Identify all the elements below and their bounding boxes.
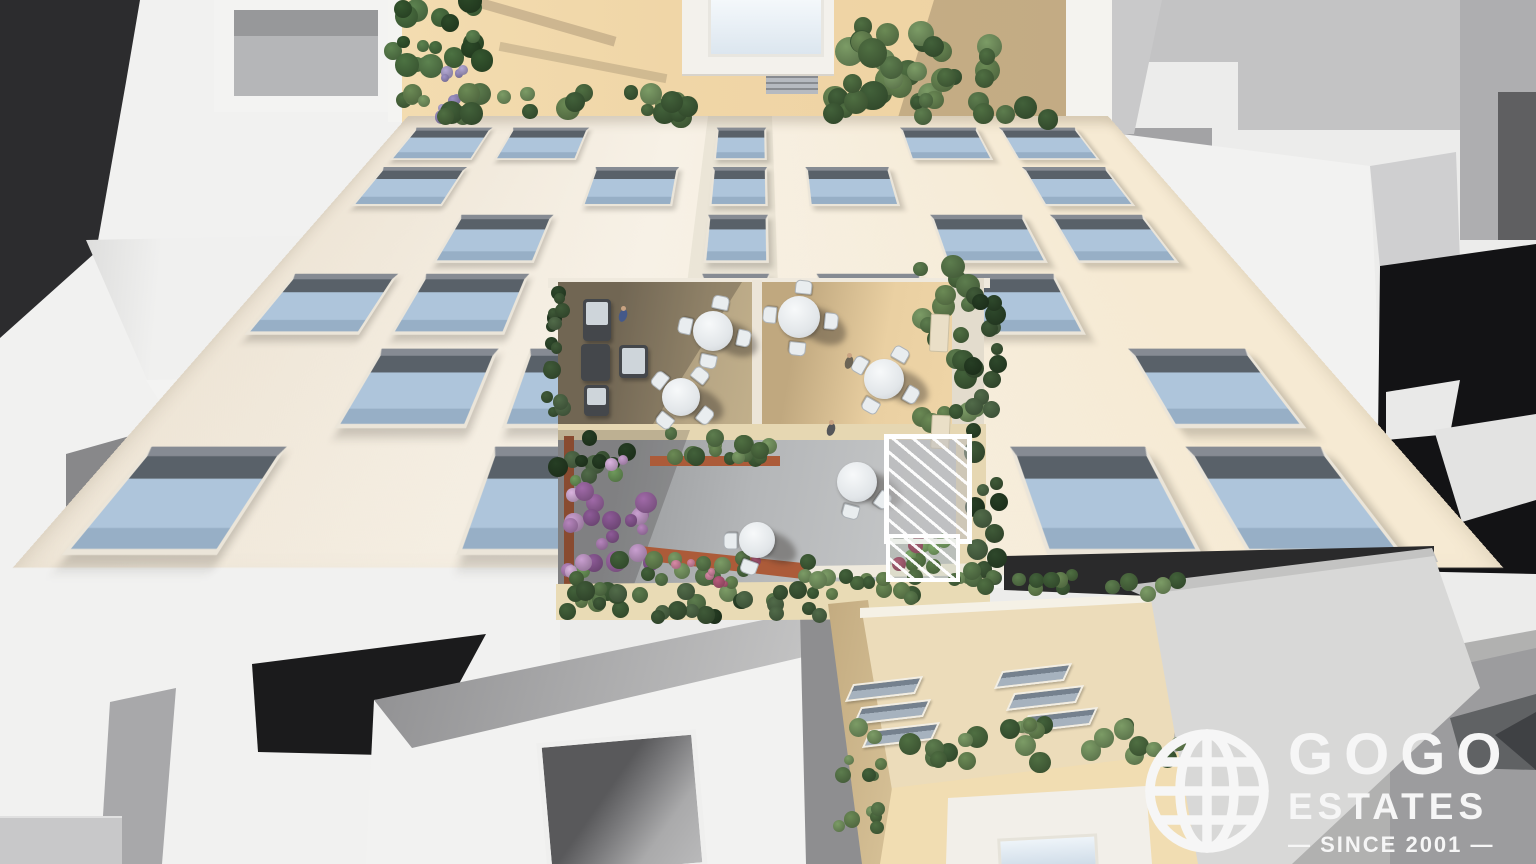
roof-tree-small-blob xyxy=(979,48,996,65)
courtyard-walkway xyxy=(556,580,990,620)
palm-tree-blob xyxy=(409,57,423,71)
pergola-garden-blob xyxy=(913,534,924,545)
roof-tree-small-blob xyxy=(977,34,1002,59)
bottom-hedge-diagonal-blob xyxy=(1021,717,1038,734)
lavender-plant-blob xyxy=(441,74,449,82)
flowerbed-green-top-blob xyxy=(585,455,604,474)
ivy-wall-blob xyxy=(987,548,1008,569)
ivy-wall-blob xyxy=(965,497,985,517)
palm-tree-blob xyxy=(458,0,482,13)
context-parapet-court-shade xyxy=(234,10,378,36)
bottom-hedge-left-blob xyxy=(876,572,891,587)
courtyard-planter-blob xyxy=(734,435,753,454)
lounge-sofa-2 xyxy=(584,385,609,416)
roof-hedge-right-blob xyxy=(824,87,848,111)
facade-window xyxy=(674,447,775,555)
terrace-right-hedge-blob xyxy=(961,297,976,312)
pergola-garden-blob xyxy=(911,553,926,568)
ivy-wall-blob xyxy=(965,398,983,416)
roof-hedge-right-blob xyxy=(911,96,925,110)
bottom-hedge-diagonal-blob xyxy=(930,751,947,768)
terrace-table-2 xyxy=(662,378,700,416)
planter-row-mid-blob xyxy=(725,576,739,590)
context-concrete-terrace xyxy=(1004,446,1214,558)
planter-row-mid-blob xyxy=(674,563,690,579)
flowerbed-purple-blob xyxy=(625,514,638,527)
roof-hedge-right-blob xyxy=(914,107,932,125)
bottom-hedge-left-blob xyxy=(819,569,836,586)
bottom-hedge-diagonal-blob xyxy=(925,739,944,758)
roof-hedge-right-blob xyxy=(996,105,1015,124)
bottom-hedge-left-blob xyxy=(860,573,873,586)
facade-window xyxy=(582,167,680,206)
palm-tree-blob xyxy=(417,40,429,52)
walkway-hedge-blob xyxy=(767,596,784,613)
context-shadow-top-left xyxy=(0,0,160,340)
courtyard-planter-blob xyxy=(706,429,724,447)
context-shadow-black-right xyxy=(1238,244,1536,574)
terrace-table-1 xyxy=(693,311,733,351)
roof-tree-large-blob xyxy=(895,60,922,87)
courtyard-planter-blob xyxy=(739,448,753,462)
foreground-building-right-wall xyxy=(798,600,872,864)
flowerbed-purple-blob xyxy=(580,556,593,569)
bottom-hedge-diagonal-blob xyxy=(1023,718,1037,732)
flowerbed-green-bottom-blob xyxy=(569,571,584,586)
bottom-hedge-right-blob xyxy=(1120,573,1138,591)
walkway-hedge-blob xyxy=(593,597,606,610)
pergola-garden-blob xyxy=(912,549,923,560)
roof-tree-small-blob xyxy=(937,68,956,87)
facade-window xyxy=(390,128,493,160)
roof-tree-large-blob xyxy=(854,17,872,35)
bottom-building-parapet xyxy=(808,560,1190,578)
roof-hedge-left-blob xyxy=(661,91,683,113)
courtyard-planter-blob xyxy=(665,427,678,440)
ivy-wall-blob xyxy=(964,441,986,463)
planter-row-mid-blob xyxy=(695,567,715,587)
courtyard-left-terracotta xyxy=(564,436,574,616)
facade-window xyxy=(930,215,1048,263)
courtyard-table-2 xyxy=(837,462,877,502)
ivy-wall-blob xyxy=(976,561,992,577)
lounge-ottoman xyxy=(581,344,610,381)
main-roof-shadow xyxy=(896,0,1068,124)
bottom-hedge-right-blob xyxy=(1028,581,1043,596)
bottom-hedge-diagonal-blob xyxy=(1094,728,1113,747)
courtyard-planter-blob xyxy=(667,449,684,466)
terrace-table-1-chair xyxy=(698,353,718,370)
terrace-table-2-shadow xyxy=(673,381,728,428)
planter-row-mid-blob xyxy=(714,557,731,574)
facade-window xyxy=(709,167,768,206)
roof-tree-small-blob xyxy=(908,21,934,47)
roof-hedge-left-blob xyxy=(497,90,512,105)
roof-hedge-left-blob xyxy=(403,84,423,104)
flowerbed-green-top-blob xyxy=(575,455,588,468)
roof-hedge-right-blob xyxy=(910,93,928,111)
roof-hedge-right-blob xyxy=(838,103,853,118)
bottom-left-shrubs-blob xyxy=(833,820,846,833)
planter-flowers-mid-blob xyxy=(687,559,695,567)
context-wall-band-left xyxy=(488,226,518,508)
terrace-right-hedge-blob xyxy=(912,407,932,427)
facade-window xyxy=(1010,447,1203,555)
terrace-right-hedge-blob xyxy=(959,402,978,421)
terrace-right-hedge-blob xyxy=(958,403,977,422)
flowerbed-purple-blob xyxy=(643,555,659,571)
lounge-side-table-cushion xyxy=(622,348,645,374)
bottom-hedge-diagonal-blob xyxy=(1081,740,1101,760)
flowerbed-purple-blob xyxy=(602,511,621,530)
person-standing-2-body xyxy=(825,422,837,437)
pergola-garden-blob xyxy=(918,541,929,552)
bottom-hedge-right-blob xyxy=(1169,572,1186,589)
context-parapet-court-inner xyxy=(234,10,378,96)
courtyard-table-1 xyxy=(739,522,775,558)
roof-tree-small-blob xyxy=(975,58,1001,84)
facade-window xyxy=(950,274,1086,335)
terrace-right-hedge-blob xyxy=(912,308,933,329)
pergola-garden-blob xyxy=(892,557,906,571)
flowerbed-green-bottom-blob xyxy=(598,582,617,601)
bottom-building-roof-structure xyxy=(946,786,1152,864)
bottom-hedge-right-blob xyxy=(948,573,961,586)
terrace-table-3 xyxy=(778,296,820,338)
planter-flowers-mid-blob xyxy=(671,560,681,570)
ivy-wall-blob xyxy=(967,539,988,560)
walkway-hedge-blob xyxy=(609,585,627,603)
bottom-left-shrubs-blob xyxy=(866,806,876,816)
flowerbed-purple-blob xyxy=(631,508,649,526)
lavender-plant-blob xyxy=(438,104,446,112)
context-white-wall-mid xyxy=(982,438,1008,588)
flowerbed-purple-blob xyxy=(585,554,603,572)
context-roof-left-base xyxy=(0,0,560,864)
roof-hedge-right-blob xyxy=(828,88,848,108)
context-roof-slab-a xyxy=(66,230,496,382)
context-parapet-court-outer xyxy=(214,0,396,112)
roof-hedge-left-blob xyxy=(454,106,473,125)
bottom-hedge-left-blob xyxy=(904,591,918,605)
terrace-right-deck xyxy=(760,282,982,432)
main-roof-access-structure xyxy=(682,0,834,76)
walkway-hedge-blob xyxy=(733,593,750,610)
foreground-patio-opening xyxy=(536,729,707,864)
roof-hedge-left-blob xyxy=(396,92,413,109)
roof-hedge-right-blob xyxy=(1014,96,1037,119)
roof-hedge-right-blob xyxy=(833,89,849,105)
pergola-garden-blob xyxy=(926,559,941,574)
pergola-garden-blob xyxy=(908,539,922,553)
flowerbed-green-top-blob xyxy=(595,451,610,466)
context-block-bottom-left xyxy=(0,816,122,864)
terrace-edge-plants-blob xyxy=(551,342,563,354)
roof-hedge-right-blob xyxy=(919,93,933,107)
context-roof-slab-b xyxy=(140,374,510,511)
walkway-hedge-blob xyxy=(677,583,695,601)
palm-tree-blob xyxy=(444,47,465,68)
terrace-right-hedge-blob xyxy=(954,366,978,390)
ivy-wall-blob xyxy=(986,320,1002,336)
palm-tree-blob xyxy=(463,33,483,53)
ivy-wall-blob xyxy=(983,401,1000,418)
flowerbed-purple-blob xyxy=(565,565,578,578)
flowerbed-green-bottom-blob xyxy=(612,601,629,618)
planter-flowers-mid-blob xyxy=(751,556,761,566)
main-roof-skylight xyxy=(708,0,824,57)
roof-tree-large-blob xyxy=(843,74,862,93)
flowerbed-green-top-blob xyxy=(582,430,598,446)
flowerbed-green-bottom-blob xyxy=(588,594,606,612)
roof-hedge-left-blob xyxy=(670,107,692,129)
terrace-right-hedge-blob xyxy=(948,270,966,288)
ivy-wall-blob xyxy=(966,423,981,438)
roof-hedge-left-blob xyxy=(655,99,668,112)
roof-hedge-right-blob xyxy=(922,89,941,108)
roof-tree-small-blob xyxy=(931,41,952,62)
courtyard-table-1-shadow xyxy=(750,525,802,570)
courtyard-planter-blob xyxy=(732,451,745,464)
terrace-table-3-chair xyxy=(761,306,777,324)
planter-row-mid-blob xyxy=(800,554,816,570)
facade-window xyxy=(1185,447,1404,555)
terrace-table-4 xyxy=(864,359,904,399)
courtyard-planter-blob xyxy=(708,437,723,452)
bottom-left-shrubs-blob xyxy=(869,771,879,781)
bottom-hedge-diagonal-blob xyxy=(939,743,958,762)
roof-tree-large-blob xyxy=(888,74,912,98)
planter-row-mid-blob xyxy=(719,584,737,602)
palm-tree-blob xyxy=(394,0,412,18)
main-roof-terrace xyxy=(402,0,1068,124)
walkway-hedge-blob xyxy=(668,601,687,620)
roof-hedge-left-blob xyxy=(458,83,480,105)
bottom-hedge-right-blob xyxy=(1043,572,1059,588)
terrace-right-hedge-blob xyxy=(935,285,956,306)
roof-hedge-left-blob xyxy=(556,97,580,121)
context-gray-wedge-left xyxy=(66,430,146,524)
bottom-hedge-diagonal-blob xyxy=(1015,735,1036,756)
terrace-parapet xyxy=(548,278,990,288)
main-roof-vent xyxy=(766,76,818,94)
bottom-hedge-diagonal-blob xyxy=(1114,719,1134,739)
walkway-hedge-blob xyxy=(812,608,828,624)
walkway-hedge-blob xyxy=(707,609,722,624)
planter-row-mid-blob xyxy=(641,567,655,581)
planter-row-mid-blob xyxy=(696,556,711,571)
flowerbed-purple-blob xyxy=(564,513,584,533)
terrace-left-deck xyxy=(558,282,760,432)
terrace-bench-2 xyxy=(930,415,951,450)
flowerbed-green-top-blob xyxy=(548,457,568,477)
bottom-hedge-right-blob xyxy=(965,571,982,588)
bottom-hedge-diagonal-blob xyxy=(899,733,921,755)
main-roof-right-wall xyxy=(1066,0,1112,134)
bottom-hedge-right-blob xyxy=(963,562,981,580)
terrace-left-shadow xyxy=(558,282,744,432)
courtyard-planter-blob xyxy=(748,451,764,467)
palm-tree-blob xyxy=(384,42,402,60)
flowerbed-purple-blob xyxy=(584,509,599,524)
bottom-hedge-left-blob xyxy=(876,581,893,598)
roof-hedge-left-blob xyxy=(575,84,593,102)
facade-window xyxy=(351,167,467,206)
lounge-sofa-2-cushion xyxy=(587,388,606,405)
bottom-hedge-left-blob xyxy=(893,582,910,599)
roof-tree-large-blob xyxy=(858,38,888,68)
bottom-left-shrubs-blob xyxy=(835,767,851,783)
roof-hedge-right-blob xyxy=(823,103,844,124)
terrace-edge-plants-blob xyxy=(555,400,571,416)
ivy-wall-blob xyxy=(966,287,984,305)
palm-tree-blob xyxy=(419,57,430,68)
terrace-edge-plants-blob xyxy=(553,394,569,410)
flowerbed-green-bottom-blob xyxy=(607,584,627,604)
roof-hedge-left-blob xyxy=(520,87,535,102)
bottom-hedge-right-blob xyxy=(1140,586,1156,602)
pergola-garden-blob xyxy=(928,542,941,555)
watermark-logo: GOGO ESTATES — SINCE 2001 — xyxy=(1140,716,1536,864)
planter-row-mid-blob xyxy=(687,594,706,613)
palm-tree-blob xyxy=(397,36,409,48)
bottom-left-shrubs-blob xyxy=(870,811,883,824)
bottom-hedge-right-blob xyxy=(1053,572,1068,587)
terrace-table-2-chair xyxy=(689,364,711,385)
roof-tree-small-blob xyxy=(907,62,927,82)
roof-hedge-left-blob xyxy=(437,108,455,126)
person-sitting-body xyxy=(617,308,629,323)
roof-tree-large-blob xyxy=(850,30,873,53)
context-gray-top-right xyxy=(1460,0,1536,240)
roof-hedge-left-blob xyxy=(440,101,463,124)
planter-flowers-mid-blob xyxy=(713,576,725,588)
person-standing-1-head xyxy=(847,353,852,358)
facade-window xyxy=(494,128,589,160)
bottom-hedge-diagonal-blob xyxy=(1029,752,1051,774)
terrace-bench-1 xyxy=(929,314,950,353)
bottom-building-trim xyxy=(860,590,1192,618)
facade-window xyxy=(817,274,938,335)
terrace-edge-plants-blob xyxy=(551,286,566,301)
lavender-plant-blob xyxy=(452,94,461,103)
palm-tree-blob xyxy=(429,41,442,54)
roof-hedge-right-blob xyxy=(968,92,988,112)
courtyard-right-wall xyxy=(956,430,986,588)
courtyard-planter-blob xyxy=(687,447,706,466)
roof-tree-large-blob xyxy=(873,49,895,71)
bottom-building-window xyxy=(862,722,940,748)
bottom-building-window xyxy=(853,699,931,725)
facade-window xyxy=(433,215,554,263)
roof-hedge-right-blob xyxy=(871,83,892,104)
context-dark-band-mid-right xyxy=(1004,544,1436,598)
watermark-text: GOGO ESTATES — SINCE 2001 — xyxy=(1288,726,1512,856)
roof-tree-small-blob xyxy=(975,69,994,88)
terrace-right-hedge-blob xyxy=(932,295,955,318)
flowerbed-purple-blob xyxy=(596,538,608,550)
courtyard-stone-floor xyxy=(558,430,986,590)
facade-window xyxy=(1022,167,1136,206)
flowerbed-green-top-blob xyxy=(618,443,636,461)
bottom-hedge-diagonal-blob xyxy=(966,726,988,748)
terrace-edge-plants-blob xyxy=(543,361,561,379)
terrace-right-hedge-blob xyxy=(920,317,936,333)
terrace-right-hedge-blob xyxy=(941,255,964,278)
bottom-hedge-right-blob xyxy=(1066,569,1078,581)
person-standing-2-head xyxy=(829,420,834,425)
roof-hedge-left-blob xyxy=(460,102,483,125)
bottom-hedge-right-blob xyxy=(962,572,975,585)
bottom-hedge-left-blob xyxy=(809,571,828,590)
facade-window xyxy=(502,349,648,429)
facade-window xyxy=(244,274,398,335)
roof-tree-large-blob xyxy=(875,66,904,95)
flowerbed-green-bottom-blob xyxy=(559,603,576,620)
ivy-wall-blob xyxy=(973,509,992,528)
bottom-hedge-diagonal-blob xyxy=(1119,718,1133,732)
courtyard-shadow-left xyxy=(558,430,690,590)
terrace-right-hedge-blob xyxy=(967,398,985,416)
roof-tree-large-blob xyxy=(844,90,869,115)
courtyard-planter-lip xyxy=(650,456,780,466)
bottom-hedge-left-blob xyxy=(863,576,875,588)
bottom-hedge-left-blob xyxy=(839,569,854,584)
bottom-hedge-left-blob xyxy=(903,586,921,604)
ivy-wall-blob xyxy=(983,371,1001,389)
ivy-wall-blob xyxy=(987,571,1002,586)
roof-hedge-left-blob xyxy=(677,96,698,117)
planter-row-mid-blob xyxy=(655,573,668,586)
context-roof-edge-line xyxy=(144,498,560,510)
courtyard-mid-planter xyxy=(640,546,812,580)
palm-tree-blob xyxy=(441,14,459,32)
roof-tree-small-blob xyxy=(923,36,944,57)
palm-tree-blob xyxy=(395,5,418,28)
roof-hedge-right-blob xyxy=(860,88,883,111)
palm-tree-blob xyxy=(431,8,451,28)
terrace-right-hedge-blob xyxy=(949,404,964,419)
roof-tree-large-blob xyxy=(851,31,873,53)
terrace-divider-wall xyxy=(752,280,762,432)
terrace-edge-plants-blob xyxy=(544,361,555,372)
roof-hedge-right-blob xyxy=(1038,109,1058,129)
terrace-table-3-shadow xyxy=(790,299,851,351)
pergola-garden-blob xyxy=(905,550,916,561)
walkway-hedge-blob xyxy=(789,581,808,600)
flowerbed-green-top-blob xyxy=(592,454,607,469)
brand-name-line1: GOGO xyxy=(1288,726,1512,784)
context-black-sliver-mid xyxy=(1212,442,1240,562)
foreground-building-face xyxy=(366,610,850,864)
walkway-hedge-blob xyxy=(773,585,788,600)
flowerbed-purple-blob xyxy=(570,475,581,486)
globe-icon xyxy=(1140,724,1274,858)
flowerbed-purple-blob xyxy=(566,488,580,502)
bottom-left-shrubs-blob xyxy=(871,802,886,817)
roof-tree-small-blob xyxy=(933,69,955,91)
bottom-building-window xyxy=(1006,685,1084,711)
ivy-wall-blob xyxy=(974,389,990,405)
facade-window xyxy=(703,215,769,263)
terrace-table-3-chair xyxy=(823,312,839,330)
roof-hedge-left-blob xyxy=(653,102,676,125)
flowerbed-purple-blob xyxy=(575,554,592,571)
courtyard-planter-blob xyxy=(724,452,737,465)
flowerbed-green-top-blob xyxy=(607,457,621,471)
bottom-left-shrubs-blob xyxy=(862,768,876,782)
planter-flowers-mid-blob xyxy=(722,581,728,587)
